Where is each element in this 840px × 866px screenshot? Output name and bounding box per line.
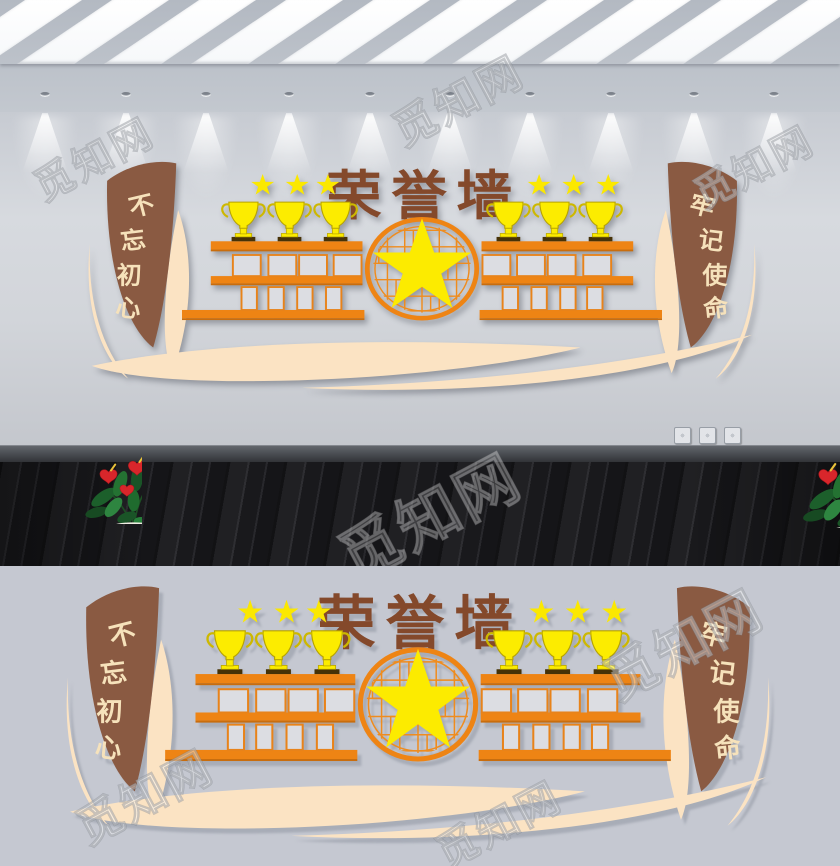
outlet-icon <box>674 427 691 444</box>
spotlight-icon <box>606 92 616 97</box>
spotlight-icon <box>40 92 50 97</box>
honor-wall-3d <box>86 157 758 397</box>
spotlight-icon <box>284 92 294 97</box>
spotlight-icon <box>121 92 131 97</box>
spotlight-icon <box>525 92 535 97</box>
spotlight-icon <box>769 92 779 97</box>
flat-design: 觅知网 觅知网 觅知网 <box>0 566 840 866</box>
spotlight-icon <box>445 92 455 97</box>
outlet-icon <box>699 427 716 444</box>
potted-plant-left <box>8 390 142 524</box>
room-render: 觅知网 觅知网 觅知网 觅知网 <box>0 0 840 566</box>
light-wash <box>0 116 91 316</box>
skylight-strip <box>0 0 840 64</box>
potted-plant-right <box>720 384 840 528</box>
spotlight-icon <box>201 92 211 97</box>
spotlight-icon <box>689 92 699 97</box>
spotlight-icon <box>365 92 375 97</box>
honor-wall-flat <box>64 581 772 846</box>
